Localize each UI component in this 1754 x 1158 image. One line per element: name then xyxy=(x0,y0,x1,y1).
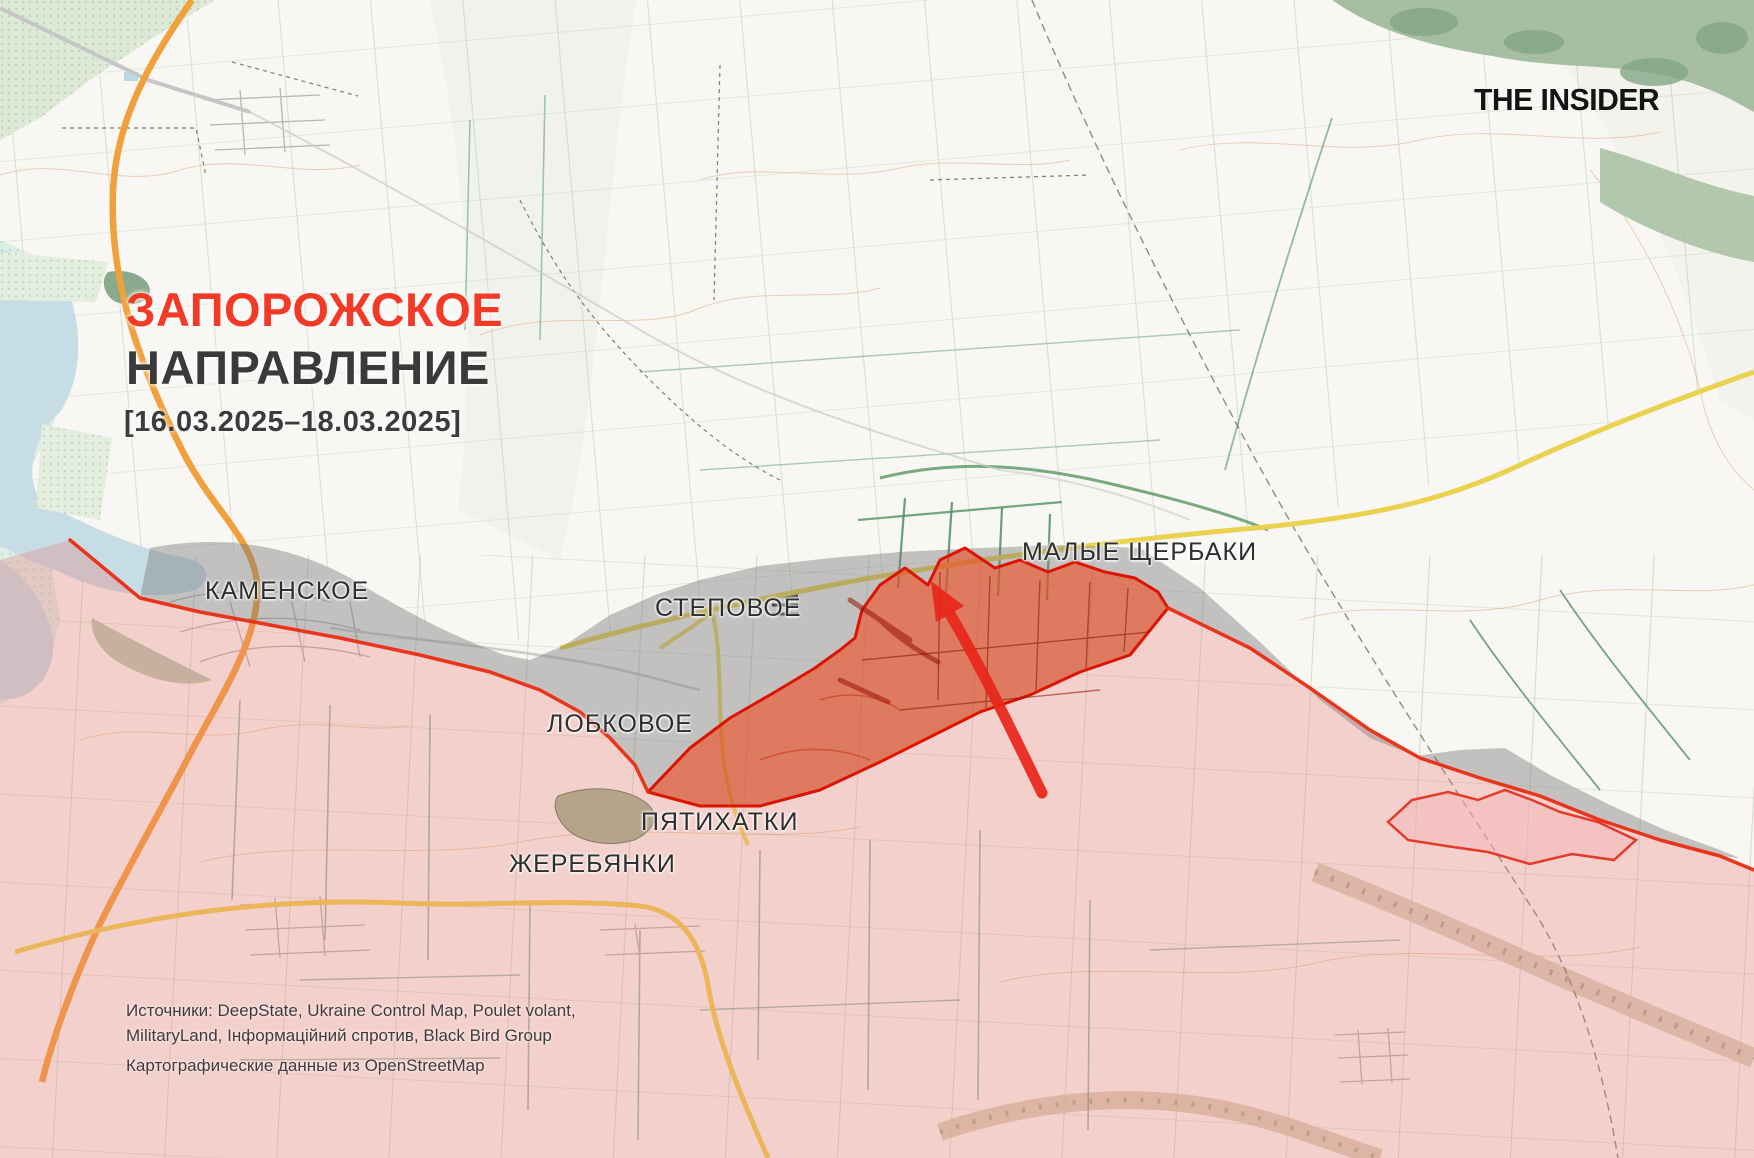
map-label-stepovoe: СТЕПОВОЕ xyxy=(655,594,802,623)
map-label-lobkovoe: ЛОБКОВОЕ xyxy=(547,710,693,739)
map-label-kamenskoe: КАМЕНСКОЕ xyxy=(205,577,369,606)
brand-logo: THE INSIDER xyxy=(1474,82,1659,118)
sources-attribution: Источники: DeepState, Ukraine Control Ma… xyxy=(126,998,576,1078)
date-range: [16.03.2025–18.03.2025] xyxy=(124,406,461,439)
sources-line-1: Источники: DeepState, Ukraine Control Ma… xyxy=(126,998,576,1023)
map-canvas: THE INSIDER ЗАПОРОЖСКОЕ НАПРАВЛЕНИЕ [16.… xyxy=(0,0,1754,1158)
title-rest: НАПРАВЛЕНИЕ xyxy=(126,340,490,395)
title-accent: ЗАПОРОЖСКОЕ xyxy=(126,282,503,337)
sources-line-3: Картографические данные из OpenStreetMap xyxy=(126,1053,576,1078)
map-label-pyatikhatki: ПЯТИХАТКИ xyxy=(641,808,798,837)
map-label-malye-shcherbaki: МАЛЫЕ ЩЕРБАКИ xyxy=(1022,538,1257,567)
sources-line-2: MilitaryLand, Інформаційний спротив, Bla… xyxy=(126,1023,576,1048)
map-label-zherebyanki: ЖЕРЕБЯНКИ xyxy=(509,850,676,879)
